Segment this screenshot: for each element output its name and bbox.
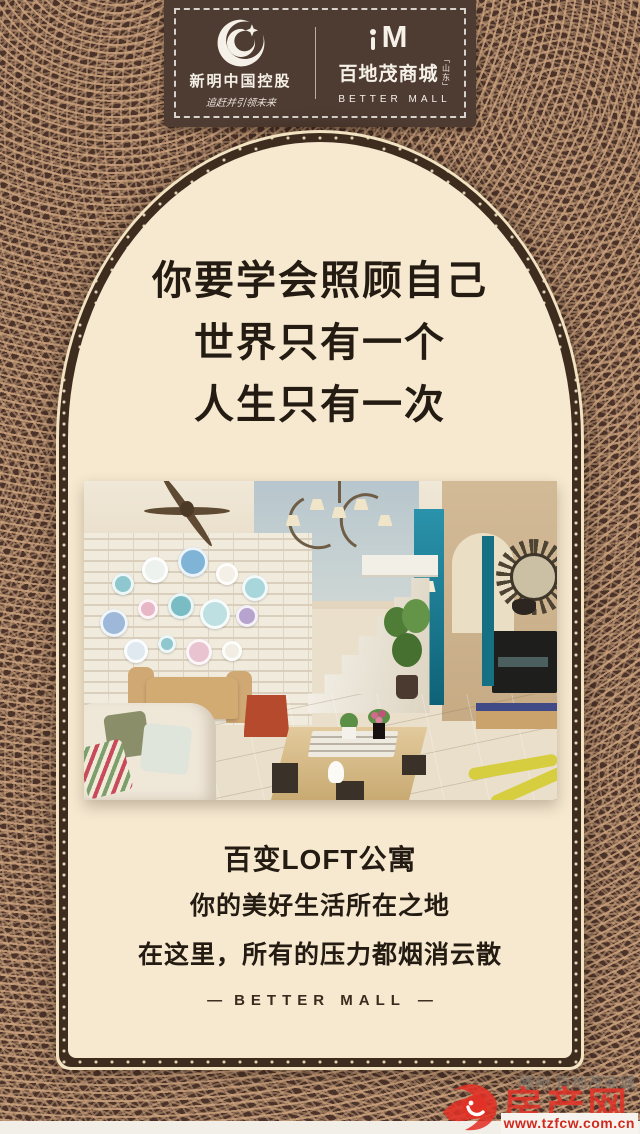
mall-region: 山东 bbox=[442, 55, 451, 91]
arch-ornament-border: 你要学会照顾自己 世界只有一个 人生只有一次 bbox=[59, 133, 581, 1067]
table-block bbox=[336, 781, 364, 800]
wall-plate bbox=[142, 557, 168, 583]
plant-pot bbox=[396, 675, 418, 699]
wall-plate bbox=[124, 639, 148, 663]
watermark-url: www.tzfcw.com.cn bbox=[504, 1115, 635, 1131]
caption-title: 百变LOFT公寓 bbox=[138, 838, 502, 882]
arch-inner-panel: 你要学会照顾自己 世界只有一个 人生只有一次 bbox=[68, 142, 572, 1058]
wall-plate bbox=[216, 563, 238, 585]
wall-plate bbox=[138, 599, 158, 619]
wall-plate bbox=[200, 599, 230, 629]
tv-screen bbox=[492, 631, 557, 693]
wall-plate bbox=[100, 609, 128, 637]
tzfcw-logo-icon bbox=[439, 1078, 509, 1134]
loft-railing bbox=[362, 555, 438, 577]
mall-latin-name: BETTER MALL bbox=[326, 94, 464, 105]
logo-divider bbox=[315, 27, 316, 99]
hero-line: 世界只有一个 bbox=[152, 312, 488, 374]
footer-brand: — BETTER MALL — bbox=[207, 992, 433, 1009]
hero-text: 你要学会照顾自己 世界只有一个 人生只有一次 bbox=[152, 250, 488, 436]
chandelier-stem bbox=[338, 481, 341, 503]
arch-panel: 你要学会照顾自己 世界只有一个 人生只有一次 bbox=[56, 130, 584, 1070]
teal-curtain bbox=[482, 536, 494, 686]
mirror-glass bbox=[510, 553, 557, 601]
footer-brand-label: BETTER MALL bbox=[234, 992, 406, 1009]
pillow bbox=[139, 723, 192, 776]
watermark-url-box: www.tzfcw.com.cn bbox=[501, 1113, 638, 1134]
m-mark-icon: M bbox=[382, 22, 408, 52]
hero-line: 人生只有一次 bbox=[152, 374, 488, 436]
tv-glow bbox=[498, 657, 548, 667]
xinming-logo: 新明中国控股 追赶并引领未来 bbox=[177, 18, 305, 109]
ceiling-fan bbox=[144, 499, 230, 521]
fan-hub bbox=[180, 501, 194, 517]
wall-plate bbox=[112, 573, 134, 595]
poster: 新明中国控股 追赶并引领未来 M 百地茂商城 山东 BETTER MALL 你要… bbox=[0, 0, 640, 1134]
crescent-star-icon bbox=[216, 18, 266, 68]
dash-left: — bbox=[207, 992, 222, 1009]
hero-line: 你要学会照顾自己 bbox=[152, 250, 488, 312]
wall-ornament bbox=[512, 599, 536, 615]
wall-plate bbox=[168, 593, 194, 619]
bird-figurine bbox=[328, 761, 344, 783]
black-vase bbox=[373, 723, 385, 739]
mall-name: 百地茂商城 bbox=[338, 59, 438, 86]
banner-dashed-border: 新明中国控股 追赶并引领未来 M 百地茂商城 山东 BETTER MALL bbox=[174, 8, 466, 118]
tv-stand bbox=[476, 703, 557, 729]
caption-line: 在这里，所有的压力都烟消云散 bbox=[138, 931, 502, 980]
person-icon bbox=[371, 37, 375, 50]
wall-plate bbox=[158, 635, 176, 653]
potted-plant bbox=[380, 599, 432, 699]
wall-plate bbox=[236, 605, 258, 627]
caption-line: 你的美好生活所在之地 bbox=[138, 882, 502, 931]
site-watermark: 滕州 百地茂商城 房产网 www.tzfcw.com.cn bbox=[445, 1068, 640, 1134]
wall-plate bbox=[178, 547, 208, 577]
dash-right: — bbox=[418, 992, 433, 1009]
company-slogan: 追赶并引领未来 bbox=[176, 94, 306, 109]
wall-plate bbox=[222, 641, 242, 661]
better-mall-logo: M 百地茂商城 山东 BETTER MALL bbox=[326, 22, 464, 105]
company-name: 新明中国控股 bbox=[177, 70, 305, 91]
table-block bbox=[272, 763, 298, 793]
loft-interior-photo bbox=[84, 481, 557, 800]
red-stool bbox=[244, 695, 290, 737]
header-banner: 新明中国控股 追赶并引领未来 M 百地茂商城 山东 BETTER MALL bbox=[164, 0, 476, 127]
white-pot bbox=[342, 727, 356, 739]
wall-plate bbox=[242, 575, 268, 601]
caption-text: 百变LOFT公寓 你的美好生活所在之地 在这里，所有的压力都烟消云散 bbox=[138, 838, 502, 980]
table-block bbox=[402, 755, 426, 775]
wall-plate bbox=[186, 639, 212, 665]
